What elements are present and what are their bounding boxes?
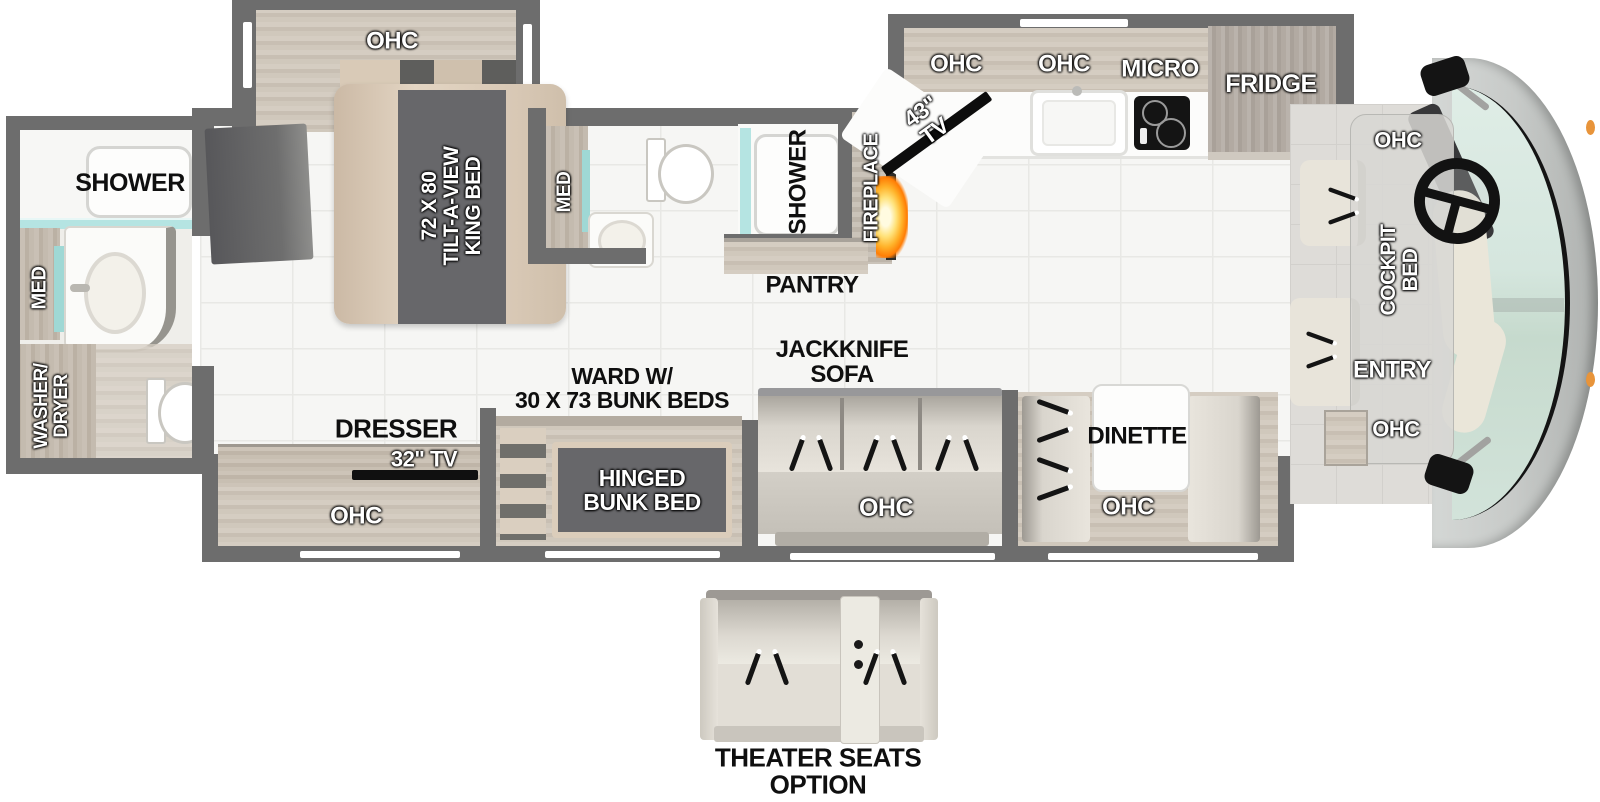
slide-indicator bbox=[1020, 19, 1128, 27]
wall bbox=[1002, 390, 1018, 562]
bedroom-tv-panel bbox=[205, 123, 314, 264]
marker-light bbox=[1586, 120, 1595, 135]
bedroom-ohc-label: OHC bbox=[366, 28, 418, 53]
theater-seats-label: THEATER SEATS OPTION bbox=[715, 745, 921, 800]
pantry-label: PANTRY bbox=[766, 272, 859, 297]
kitchen-ohc-left-label: OHC bbox=[930, 51, 982, 76]
rear-shower-label: SHOWER bbox=[75, 170, 185, 196]
rear-sink-basin bbox=[84, 252, 146, 334]
fridge-label: FRIDGE bbox=[1225, 71, 1316, 97]
entry-steps bbox=[1324, 410, 1368, 466]
cooktop-control bbox=[1140, 128, 1147, 144]
rv-floorplan: 43" TV bbox=[0, 0, 1600, 802]
sofa-divider bbox=[918, 398, 922, 470]
seatbelt-icon bbox=[1324, 186, 1360, 225]
wall bbox=[232, 0, 540, 10]
sofa-divider bbox=[840, 398, 844, 470]
seatbelt-icon bbox=[862, 434, 908, 476]
king-bed-label: 72 X 80 TILT-A-VIEW KING BED bbox=[419, 147, 485, 266]
dinette-belt-wrap bbox=[1032, 456, 1074, 502]
dinette-label: DINETTE bbox=[1087, 423, 1186, 448]
wall bbox=[742, 420, 758, 562]
cab-belt-wrap bbox=[1299, 327, 1341, 367]
cooktop-burner bbox=[1156, 118, 1186, 148]
seatbelt-icon bbox=[862, 648, 908, 690]
seatbelt-icon bbox=[744, 648, 790, 690]
wall bbox=[6, 458, 212, 474]
entry-label: ENTRY bbox=[1353, 357, 1431, 382]
hinged-bunk-label: HINGED BUNK BED bbox=[583, 466, 700, 514]
cockpit-bed-label: COCKPIT BED bbox=[1378, 225, 1422, 316]
kitchen-sink-basin bbox=[1042, 100, 1116, 146]
mid-med-label: MED bbox=[555, 172, 575, 213]
kitchen-ohc-right-label: OHC bbox=[1038, 51, 1090, 76]
wall bbox=[192, 108, 236, 126]
slide-indicator bbox=[790, 553, 995, 560]
cockpit-ohc-bottom-label: OHC bbox=[1372, 417, 1419, 440]
slide-indicator bbox=[243, 22, 252, 88]
rear-med-label: MED bbox=[30, 267, 51, 310]
dinette-belt-wrap bbox=[1032, 398, 1074, 444]
exterior bbox=[6, 474, 202, 560]
wall bbox=[528, 248, 646, 264]
dresser-label: DRESSER bbox=[335, 415, 457, 442]
wall bbox=[6, 116, 212, 130]
theater-front-skirt bbox=[714, 726, 924, 742]
seatbelt-icon bbox=[934, 434, 980, 476]
dinette-bench-right bbox=[1188, 396, 1260, 542]
marker-light bbox=[1586, 372, 1595, 387]
sofa-base bbox=[775, 532, 989, 546]
mid-shower-label: SHOWER bbox=[785, 130, 810, 235]
mid-shower-glass bbox=[740, 128, 751, 234]
slide-indicator bbox=[1048, 553, 1258, 560]
seatbelt-icon bbox=[1032, 398, 1074, 444]
theater-armrest bbox=[700, 598, 718, 740]
washer-dryer-label: WASHER/ DRYER bbox=[32, 363, 72, 448]
slide-indicator bbox=[545, 551, 720, 558]
wall bbox=[480, 408, 496, 562]
dresser-ohc-label: OHC bbox=[330, 503, 382, 528]
tv-32-label: 32" TV bbox=[391, 447, 457, 470]
bunk-slide-trim bbox=[496, 416, 742, 426]
pantry-cabinet bbox=[724, 238, 868, 274]
rear-sink-faucet bbox=[70, 284, 90, 292]
wall bbox=[528, 108, 546, 252]
micro-label: MICRO bbox=[1121, 56, 1199, 81]
sofa-ohc-label: OHC bbox=[859, 495, 913, 521]
tv-32-bar bbox=[352, 470, 478, 480]
rear-med-accent bbox=[54, 246, 64, 332]
kitchen-faucet bbox=[1072, 86, 1082, 96]
ward-bunks-label: WARD W/ 30 X 73 BUNK BEDS bbox=[515, 364, 729, 412]
slide-indicator bbox=[300, 551, 460, 558]
bunk-ladder bbox=[500, 428, 546, 540]
seatbelt-icon bbox=[1302, 330, 1338, 369]
theater-armrest bbox=[920, 598, 938, 740]
mid-toilet-bowl bbox=[658, 144, 714, 204]
seatbelt-icon bbox=[788, 434, 834, 476]
jackknife-sofa-label: JACKKNIFE SOFA bbox=[776, 337, 909, 387]
wall bbox=[6, 116, 20, 474]
fireplace-label: FIREPLACE bbox=[862, 134, 883, 243]
cockpit-ohc-top-label: OHC bbox=[1374, 128, 1421, 151]
seatbelt-icon bbox=[1032, 456, 1074, 502]
dinette-ohc-label: OHC bbox=[1102, 494, 1154, 519]
cab-belt-wrap bbox=[1321, 183, 1363, 223]
